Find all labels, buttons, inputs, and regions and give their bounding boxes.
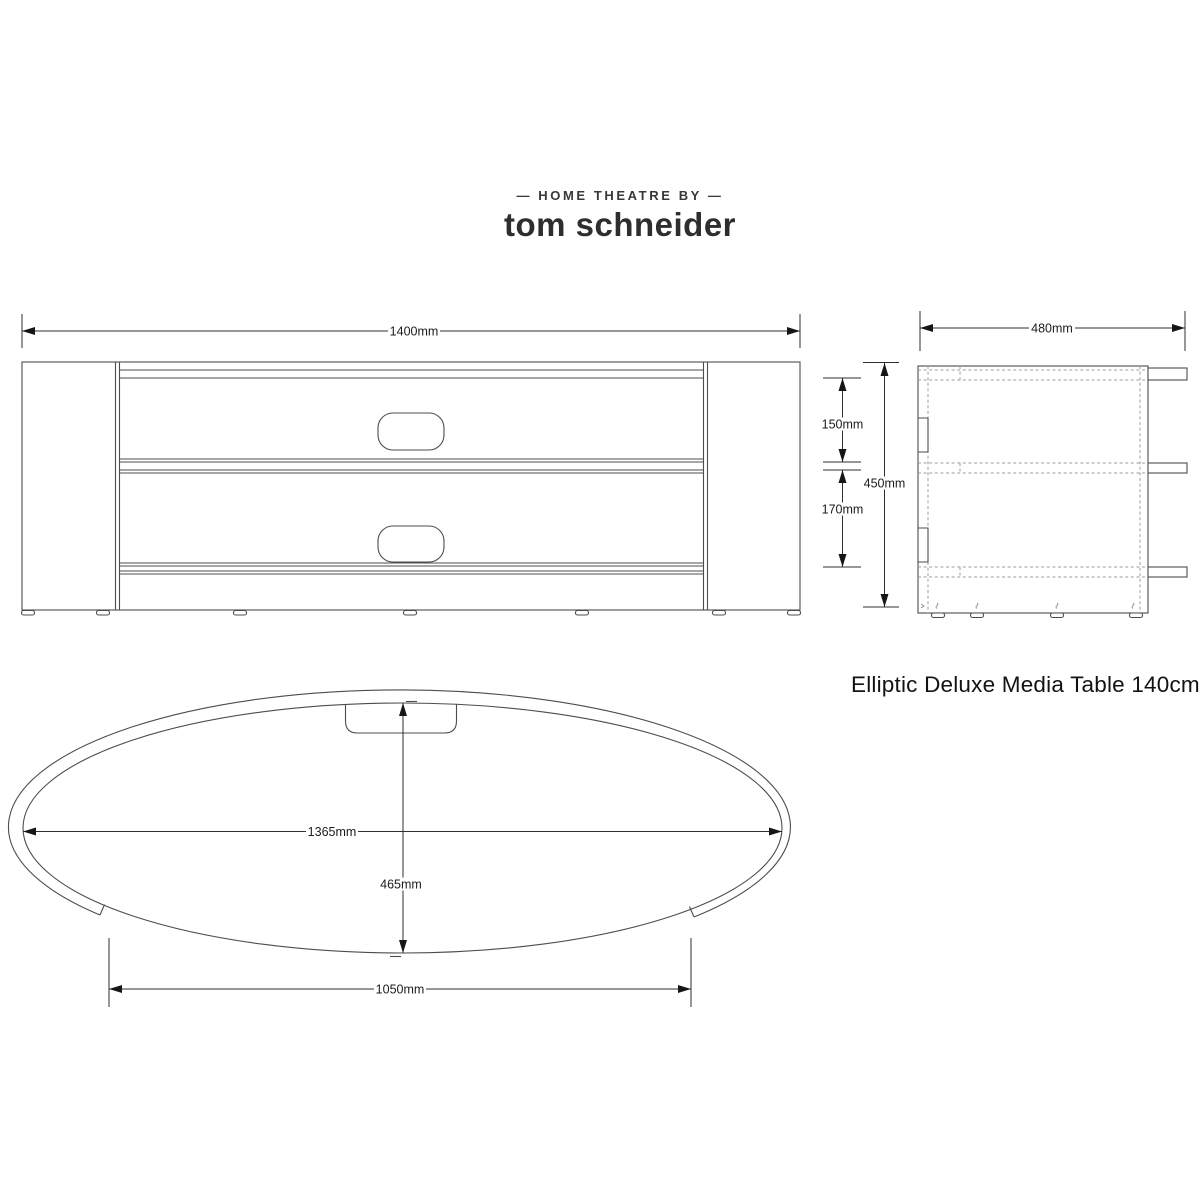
foot (971, 613, 984, 618)
cable-notch (346, 704, 457, 733)
dim-arrow-left (23, 828, 36, 836)
top-dim-opening: 1050mm (109, 938, 691, 1007)
foot (1130, 613, 1143, 618)
side-dim-depth: 480mm (920, 311, 1185, 351)
side-body (918, 366, 1187, 618)
top-view: 1365mm 465mm 1050mm (8, 690, 790, 1007)
foot (576, 611, 589, 616)
dim-arrow-left (109, 985, 122, 993)
front-dim-shelf-bottom: 170mm (821, 470, 865, 567)
top-dim-depth: 465mm (379, 703, 423, 953)
technical-drawing-page: — HOME THEATRE BY — tom schneider Ellipt… (0, 0, 1200, 1200)
dim-front-width-label: 1400mm (390, 325, 439, 339)
dim-arrow-right (787, 327, 800, 335)
dim-arrow-up (881, 363, 889, 376)
foot (234, 611, 247, 616)
dim-arrow-left (22, 327, 35, 335)
dim-arrow-right (769, 828, 782, 836)
cabinet-outline (22, 362, 800, 610)
dim-height-label: 450mm (864, 477, 906, 491)
dim-arrow-down (881, 594, 889, 607)
front-dim-height: 450mm (862, 363, 908, 608)
drawing-svg: 1400mm (0, 0, 1200, 1200)
dim-arrow-down (399, 940, 407, 953)
top-surface (8, 690, 790, 957)
front-dim-width: 1400mm (22, 314, 800, 348)
rim-cut-end-left (100, 905, 105, 916)
dim-arrow-down (839, 554, 847, 567)
shelf-tab-middle (1148, 463, 1187, 473)
dim-arrow-left (920, 324, 933, 332)
foot (1051, 613, 1064, 618)
dim-top-width-label: 1365mm (308, 825, 357, 839)
front-dim-shelf-top: 150mm (821, 378, 865, 462)
foot (97, 611, 110, 616)
dim-shelf-top-label: 150mm (822, 418, 864, 432)
shelf-tab-bottom (1148, 567, 1187, 577)
shelf-tab-top (1148, 368, 1187, 380)
foot (404, 611, 417, 616)
dim-shelf-bottom-label: 170mm (822, 503, 864, 517)
foot (788, 611, 801, 616)
dim-arrow-up (839, 470, 847, 483)
dim-depth-label: 480mm (1031, 322, 1073, 336)
dim-arrow-down (839, 449, 847, 462)
dim-arrow-up (399, 703, 407, 716)
dim-arrow-right (678, 985, 691, 993)
side-outline (918, 366, 1148, 613)
dim-top-depth-label: 465mm (380, 878, 422, 892)
foot (713, 611, 726, 616)
front-cabinet (22, 362, 801, 615)
foot (932, 613, 945, 618)
dim-arrow-up (839, 378, 847, 391)
front-feet (22, 611, 801, 616)
front-view: 1400mm (22, 314, 908, 615)
side-view: 480mm (918, 311, 1187, 618)
dim-top-opening-label: 1050mm (376, 983, 425, 997)
foot (22, 611, 35, 616)
dim-arrow-right (1172, 324, 1185, 332)
